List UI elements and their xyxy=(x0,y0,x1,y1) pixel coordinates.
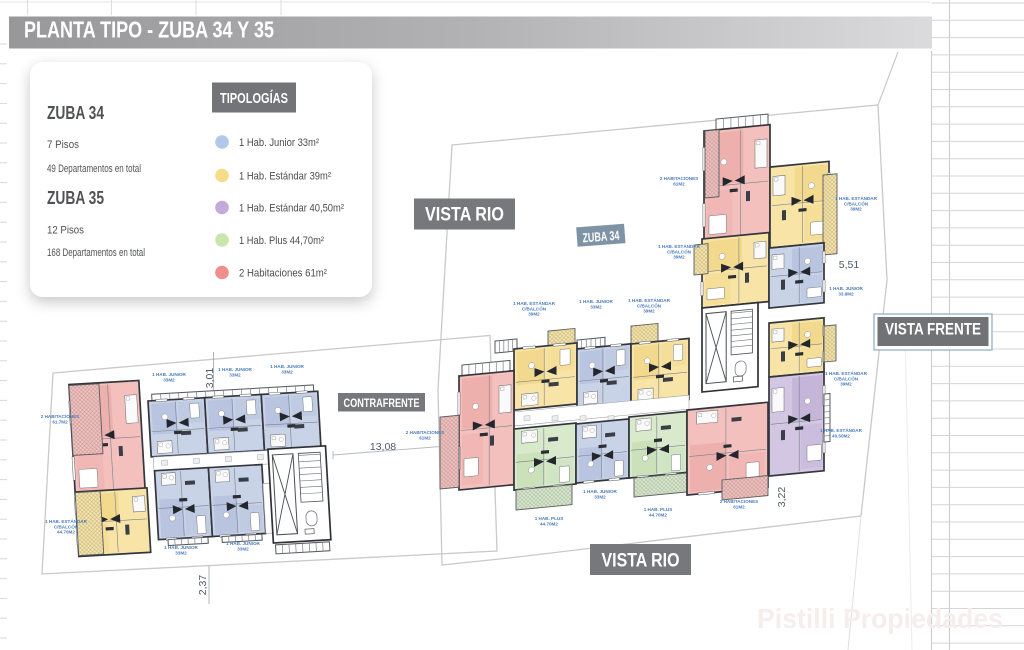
svg-text:2 Habitaciones 61m²: 2 Habitaciones 61m² xyxy=(239,268,327,280)
svg-text:7 Pisos: 7 Pisos xyxy=(47,139,79,151)
svg-text:ZUBA 34: ZUBA 34 xyxy=(47,103,104,123)
svg-text:3,01: 3,01 xyxy=(204,368,216,389)
svg-text:3,22: 3,22 xyxy=(776,487,788,508)
svg-text:1 Hab. Estándar 39m²: 1 Hab. Estándar 39m² xyxy=(239,171,331,183)
svg-text:PLANTA TIPO - ZUBA 34 Y 35: PLANTA TIPO - ZUBA 34 Y 35 xyxy=(24,17,274,43)
svg-text:1 Hab. Estándar 40,50m²: 1 Hab. Estándar 40,50m² xyxy=(239,203,344,215)
svg-text:1 Hab. Plus 44,70m²: 1 Hab. Plus 44,70m² xyxy=(239,235,324,247)
svg-text:5,51: 5,51 xyxy=(839,259,860,271)
svg-text:1 Hab. Junior 33m²: 1 Hab. Junior 33m² xyxy=(239,137,319,149)
svg-text:49 Departamentos en total: 49 Departamentos en total xyxy=(47,163,141,175)
svg-text:VISTA RIO: VISTA RIO xyxy=(425,205,504,226)
svg-text:VISTA FRENTE: VISTA FRENTE xyxy=(885,320,981,339)
svg-text:Pistilli Propiedades: Pistilli Propiedades xyxy=(757,603,1003,634)
svg-text:12 Pisos: 12 Pisos xyxy=(47,225,84,237)
svg-text:VISTA RIO: VISTA RIO xyxy=(602,551,680,572)
svg-text:13,08: 13,08 xyxy=(370,441,396,453)
svg-text:ZUBA 34: ZUBA 34 xyxy=(582,228,621,246)
svg-text:TIPOLOGÍAS: TIPOLOGÍAS xyxy=(220,90,288,107)
svg-text:168 Departamentos en total: 168 Departamentos en total xyxy=(47,247,145,259)
svg-text:ZUBA 35: ZUBA 35 xyxy=(47,188,104,208)
svg-text:2,37: 2,37 xyxy=(197,575,209,596)
svg-text:CONTRAFRENTE: CONTRAFRENTE xyxy=(344,396,420,410)
